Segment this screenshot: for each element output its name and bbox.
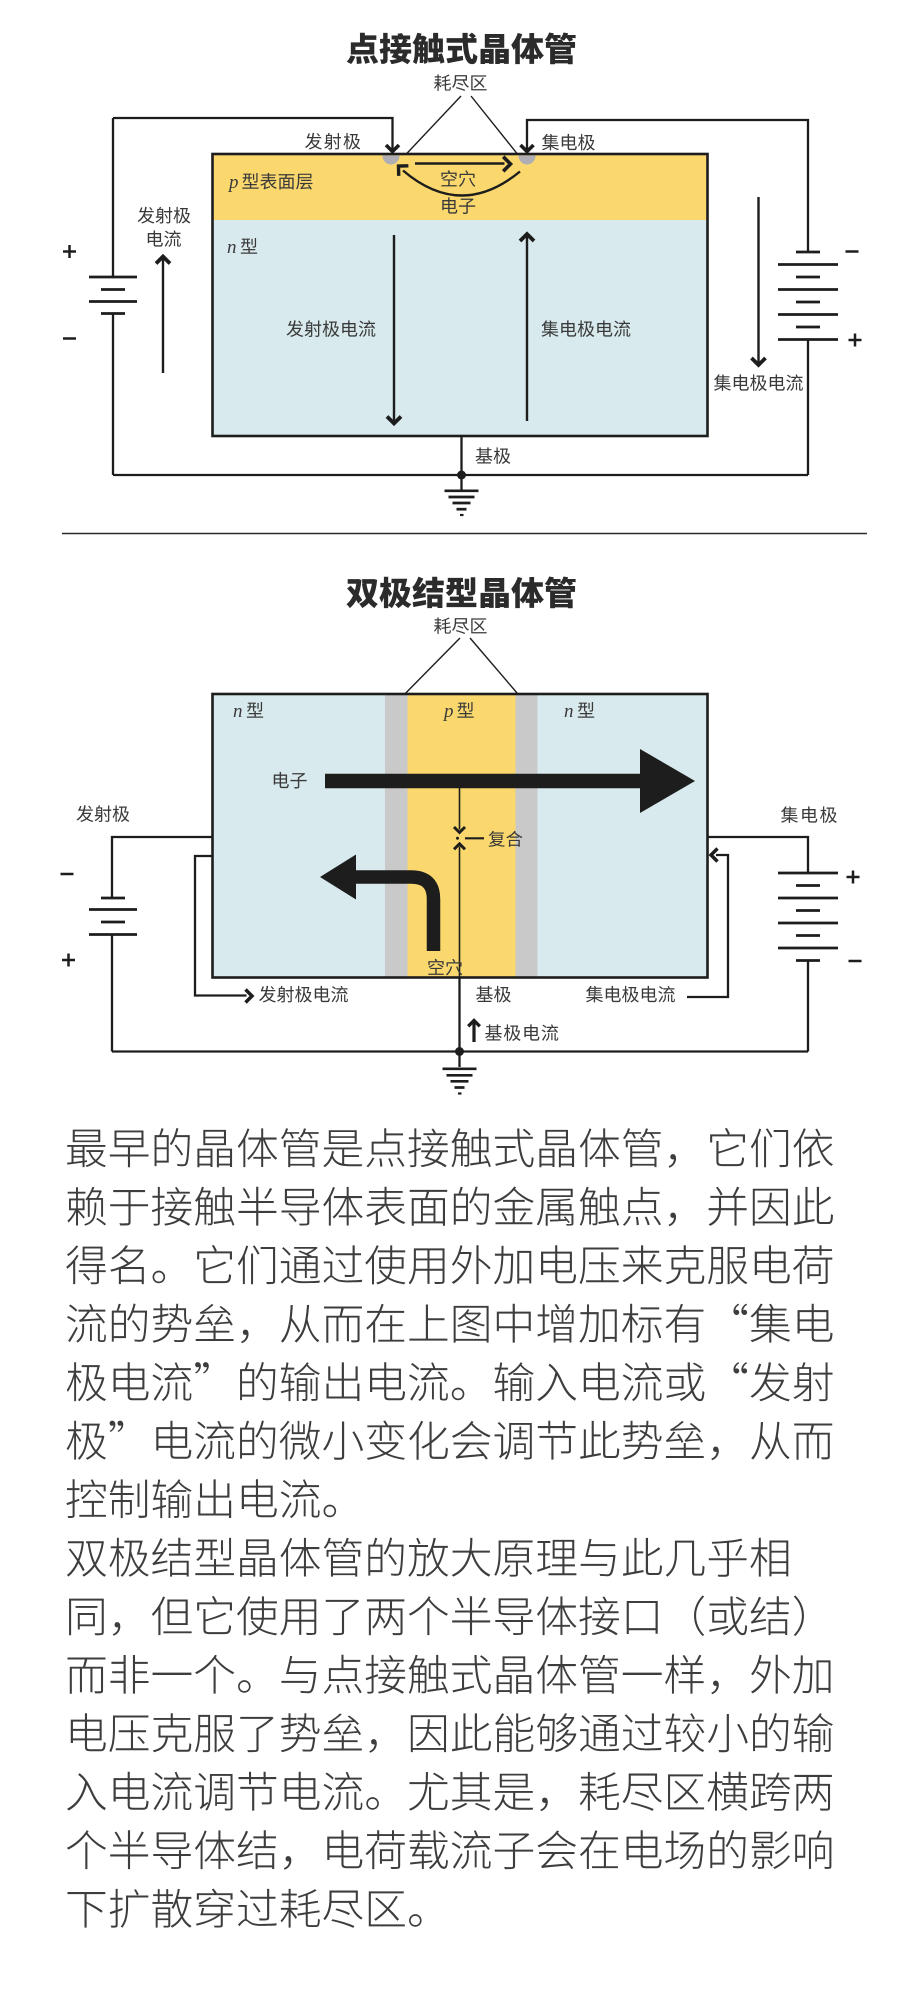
svg-text:n: n xyxy=(233,701,243,722)
svg-text:n: n xyxy=(564,701,574,722)
svg-text:p: p xyxy=(442,701,454,722)
svg-text:n: n xyxy=(227,237,237,258)
svg-text:p: p xyxy=(227,172,239,193)
